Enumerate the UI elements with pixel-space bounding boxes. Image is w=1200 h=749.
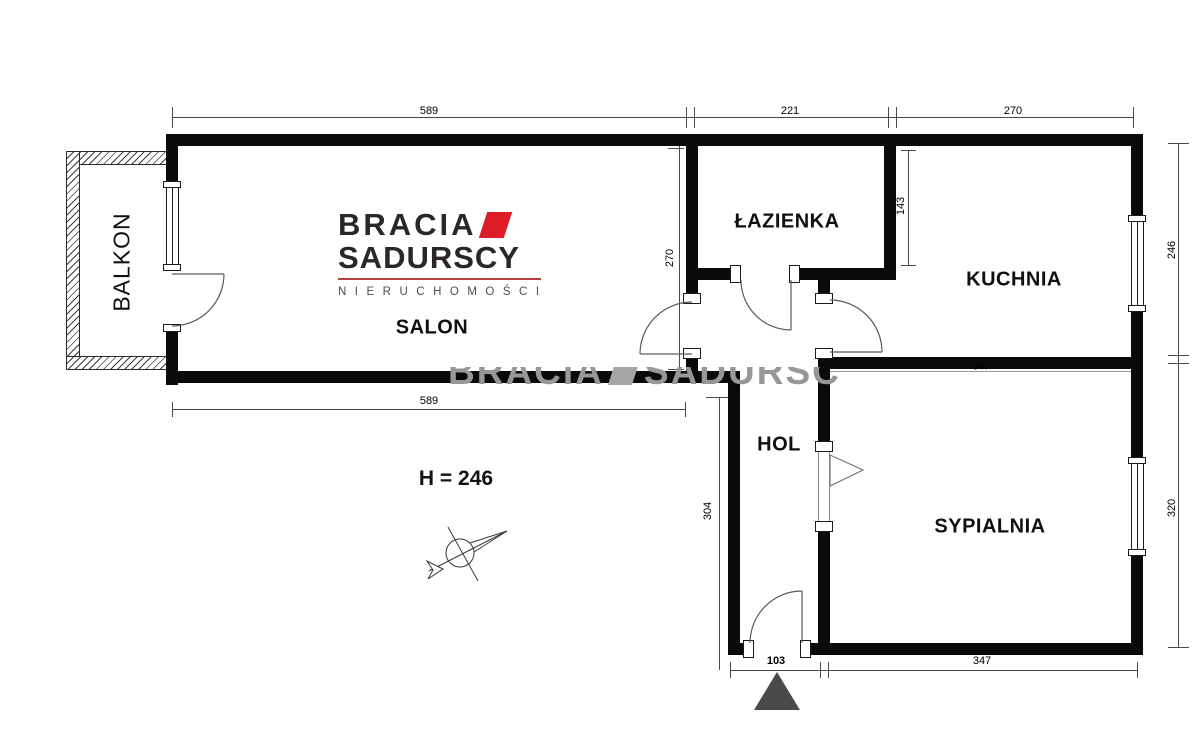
balcony-door-arc: [172, 274, 224, 326]
dim-line-salon-bottom: [172, 409, 686, 410]
dim-tick: [668, 148, 684, 149]
brand-logo-divider: [338, 278, 541, 280]
brand-name-line1: BRACIA: [338, 208, 477, 241]
balcony-door-sill: [163, 324, 181, 332]
bedroom-window-pane: [1137, 462, 1138, 551]
dim-tick: [828, 662, 829, 678]
dim-tick: [172, 107, 173, 128]
kitchen-window-sill-top: [1128, 215, 1146, 222]
wall-left-upper: [166, 134, 178, 185]
room-label-balkon: BALKON: [109, 212, 136, 311]
kitchen-door-jamb-top: [815, 293, 833, 304]
dim-tick: [1137, 662, 1138, 678]
dim-label-kuchnia-width: 270: [1004, 105, 1022, 117]
balcony-wall-bottom: [66, 356, 170, 370]
bath-door-jamb-right: [789, 265, 800, 283]
wall-bottom-right: [811, 643, 1143, 655]
dim-line-nook: [908, 150, 909, 266]
kitchen-window-pane: [1137, 220, 1138, 307]
kitchen-door-arc: [830, 300, 882, 352]
room-label-salon: SALON: [396, 317, 469, 340]
dim-tick: [685, 402, 686, 417]
dim-tick: [1168, 355, 1189, 356]
dim-line-right: [1178, 143, 1179, 648]
dim-tick: [694, 107, 695, 128]
balcony-wall-left: [66, 151, 80, 370]
salon-door-jamb-bottom: [683, 348, 701, 359]
kitchen-window-sill-bottom: [1128, 305, 1146, 312]
bedroom-door-wedge: [830, 455, 863, 486]
balcony-window-pane: [172, 185, 173, 267]
dim-tick: [901, 265, 916, 266]
dim-label-lazienka-width: 221: [781, 105, 799, 117]
wall-bath-bottom-left: [686, 268, 730, 280]
balcony-window-sill-top: [163, 181, 181, 188]
kitchen-door-jamb-bottom: [815, 348, 833, 359]
brand-tagline: NIERUCHOMOŚCI: [338, 286, 548, 298]
floor-plan: BALKON: [0, 0, 1200, 749]
dim-label-sypialnia-height: 320: [1166, 499, 1178, 517]
dim-tick: [901, 150, 916, 151]
balcony-wall-top: [66, 151, 170, 165]
wall-bottom-left: [728, 643, 743, 655]
dim-tick: [1133, 107, 1134, 128]
bath-door-arc: [741, 280, 791, 330]
dim-tick: [1168, 143, 1189, 144]
room-label-lazienka: ŁAZIENKA: [734, 211, 839, 234]
bath-door-jamb-left: [730, 265, 741, 283]
watermark: BRACIA SADURSC: [448, 350, 841, 394]
wall-top: [166, 134, 1143, 146]
wall-right-upper: [1131, 134, 1143, 220]
dim-label-mid-wall: 347: [973, 362, 990, 373]
dim-label-salon-depth: 270: [664, 249, 676, 267]
dim-tick: [1168, 647, 1189, 648]
bedroom-window-sill-bottom: [1128, 549, 1146, 556]
room-label-hol: HOL: [757, 434, 801, 457]
watermark-part2: SADURSC: [644, 351, 841, 393]
dim-line-hall: [719, 397, 720, 670]
dim-label-salon-width-bottom: 589: [420, 395, 438, 407]
dim-label-nook-depth: 143: [895, 197, 907, 215]
entrance-door-jamb-right: [800, 640, 811, 658]
entrance-marker: [754, 672, 800, 710]
dim-tick: [686, 107, 687, 128]
dim-tick: [820, 662, 821, 678]
brand-logo-mark-icon: [478, 212, 511, 238]
north-arrow-icon: [427, 527, 507, 581]
dim-tick: [888, 107, 889, 128]
room-label-sypialnia: SYPIALNIA: [934, 516, 1045, 539]
dim-tick: [1168, 363, 1189, 364]
entrance-door-arc: [750, 591, 802, 643]
dim-label-hol-depth: 304: [702, 502, 714, 520]
wall-hall-right-c: [818, 528, 830, 655]
bedroom-door-jamb-bottom: [815, 521, 833, 532]
salon-door-arc: [640, 302, 692, 354]
wall-hall-left: [728, 371, 740, 655]
bedroom-door-jamb-top: [815, 441, 833, 452]
salon-door-jamb-top: [683, 293, 701, 304]
wall-right-lower: [1131, 551, 1143, 655]
dim-tick: [172, 402, 173, 417]
dim-tick: [896, 107, 897, 128]
wall-hall-right-a: [818, 268, 830, 293]
bedroom-door-opening: [818, 450, 830, 532]
wall-right-middle: [1131, 307, 1143, 462]
entrance-door-jamb-left: [743, 640, 754, 658]
brand-logo: BRACIA SADURSCY NIERUCHOMOŚCI: [338, 208, 548, 298]
wall-bath-bottom-right: [800, 268, 896, 280]
room-label-kuchnia: KUCHNIA: [966, 269, 1062, 292]
balcony-window-sill-bottom: [163, 264, 181, 271]
dim-label-sypialnia-width-bottom: 347: [973, 655, 991, 667]
dim-line-bottom: [730, 670, 1137, 671]
dim-label-salon-width-top: 589: [420, 105, 438, 117]
watermark-part1: BRACIA: [448, 351, 604, 393]
dim-label-entrance-width: 103: [767, 655, 785, 667]
dim-line-top: [172, 117, 1133, 118]
dim-tick: [730, 662, 731, 678]
dim-line-salon-depth: [679, 146, 680, 373]
dim-label-kuchnia-height: 246: [1166, 241, 1178, 259]
bedroom-window-sill-top: [1128, 457, 1146, 464]
watermark-logo-mark-icon: [608, 360, 640, 385]
ceiling-height-note: H = 246: [419, 467, 493, 491]
brand-name-line2: SADURSCY: [338, 241, 548, 274]
